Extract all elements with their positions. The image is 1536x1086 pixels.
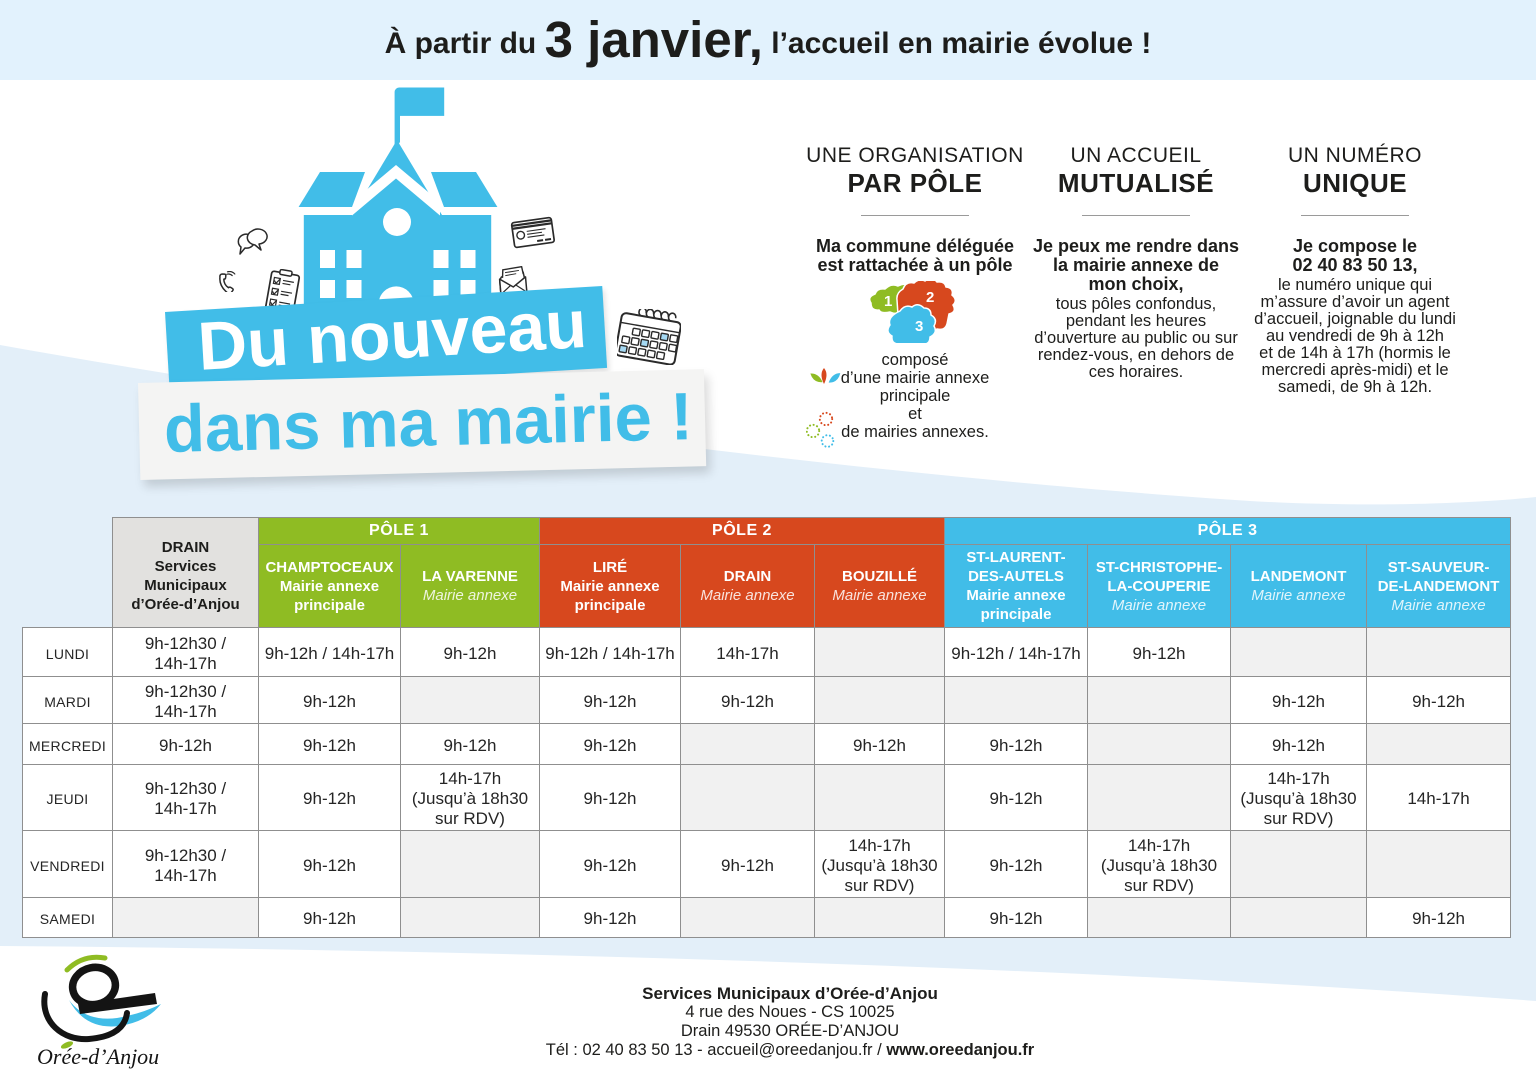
svg-text:3: 3 bbox=[915, 318, 923, 335]
svg-text:2: 2 bbox=[926, 289, 934, 306]
svg-text:Orée-d’Anjou: Orée-d’Anjou bbox=[37, 1044, 159, 1069]
svg-text:1: 1 bbox=[884, 293, 892, 310]
